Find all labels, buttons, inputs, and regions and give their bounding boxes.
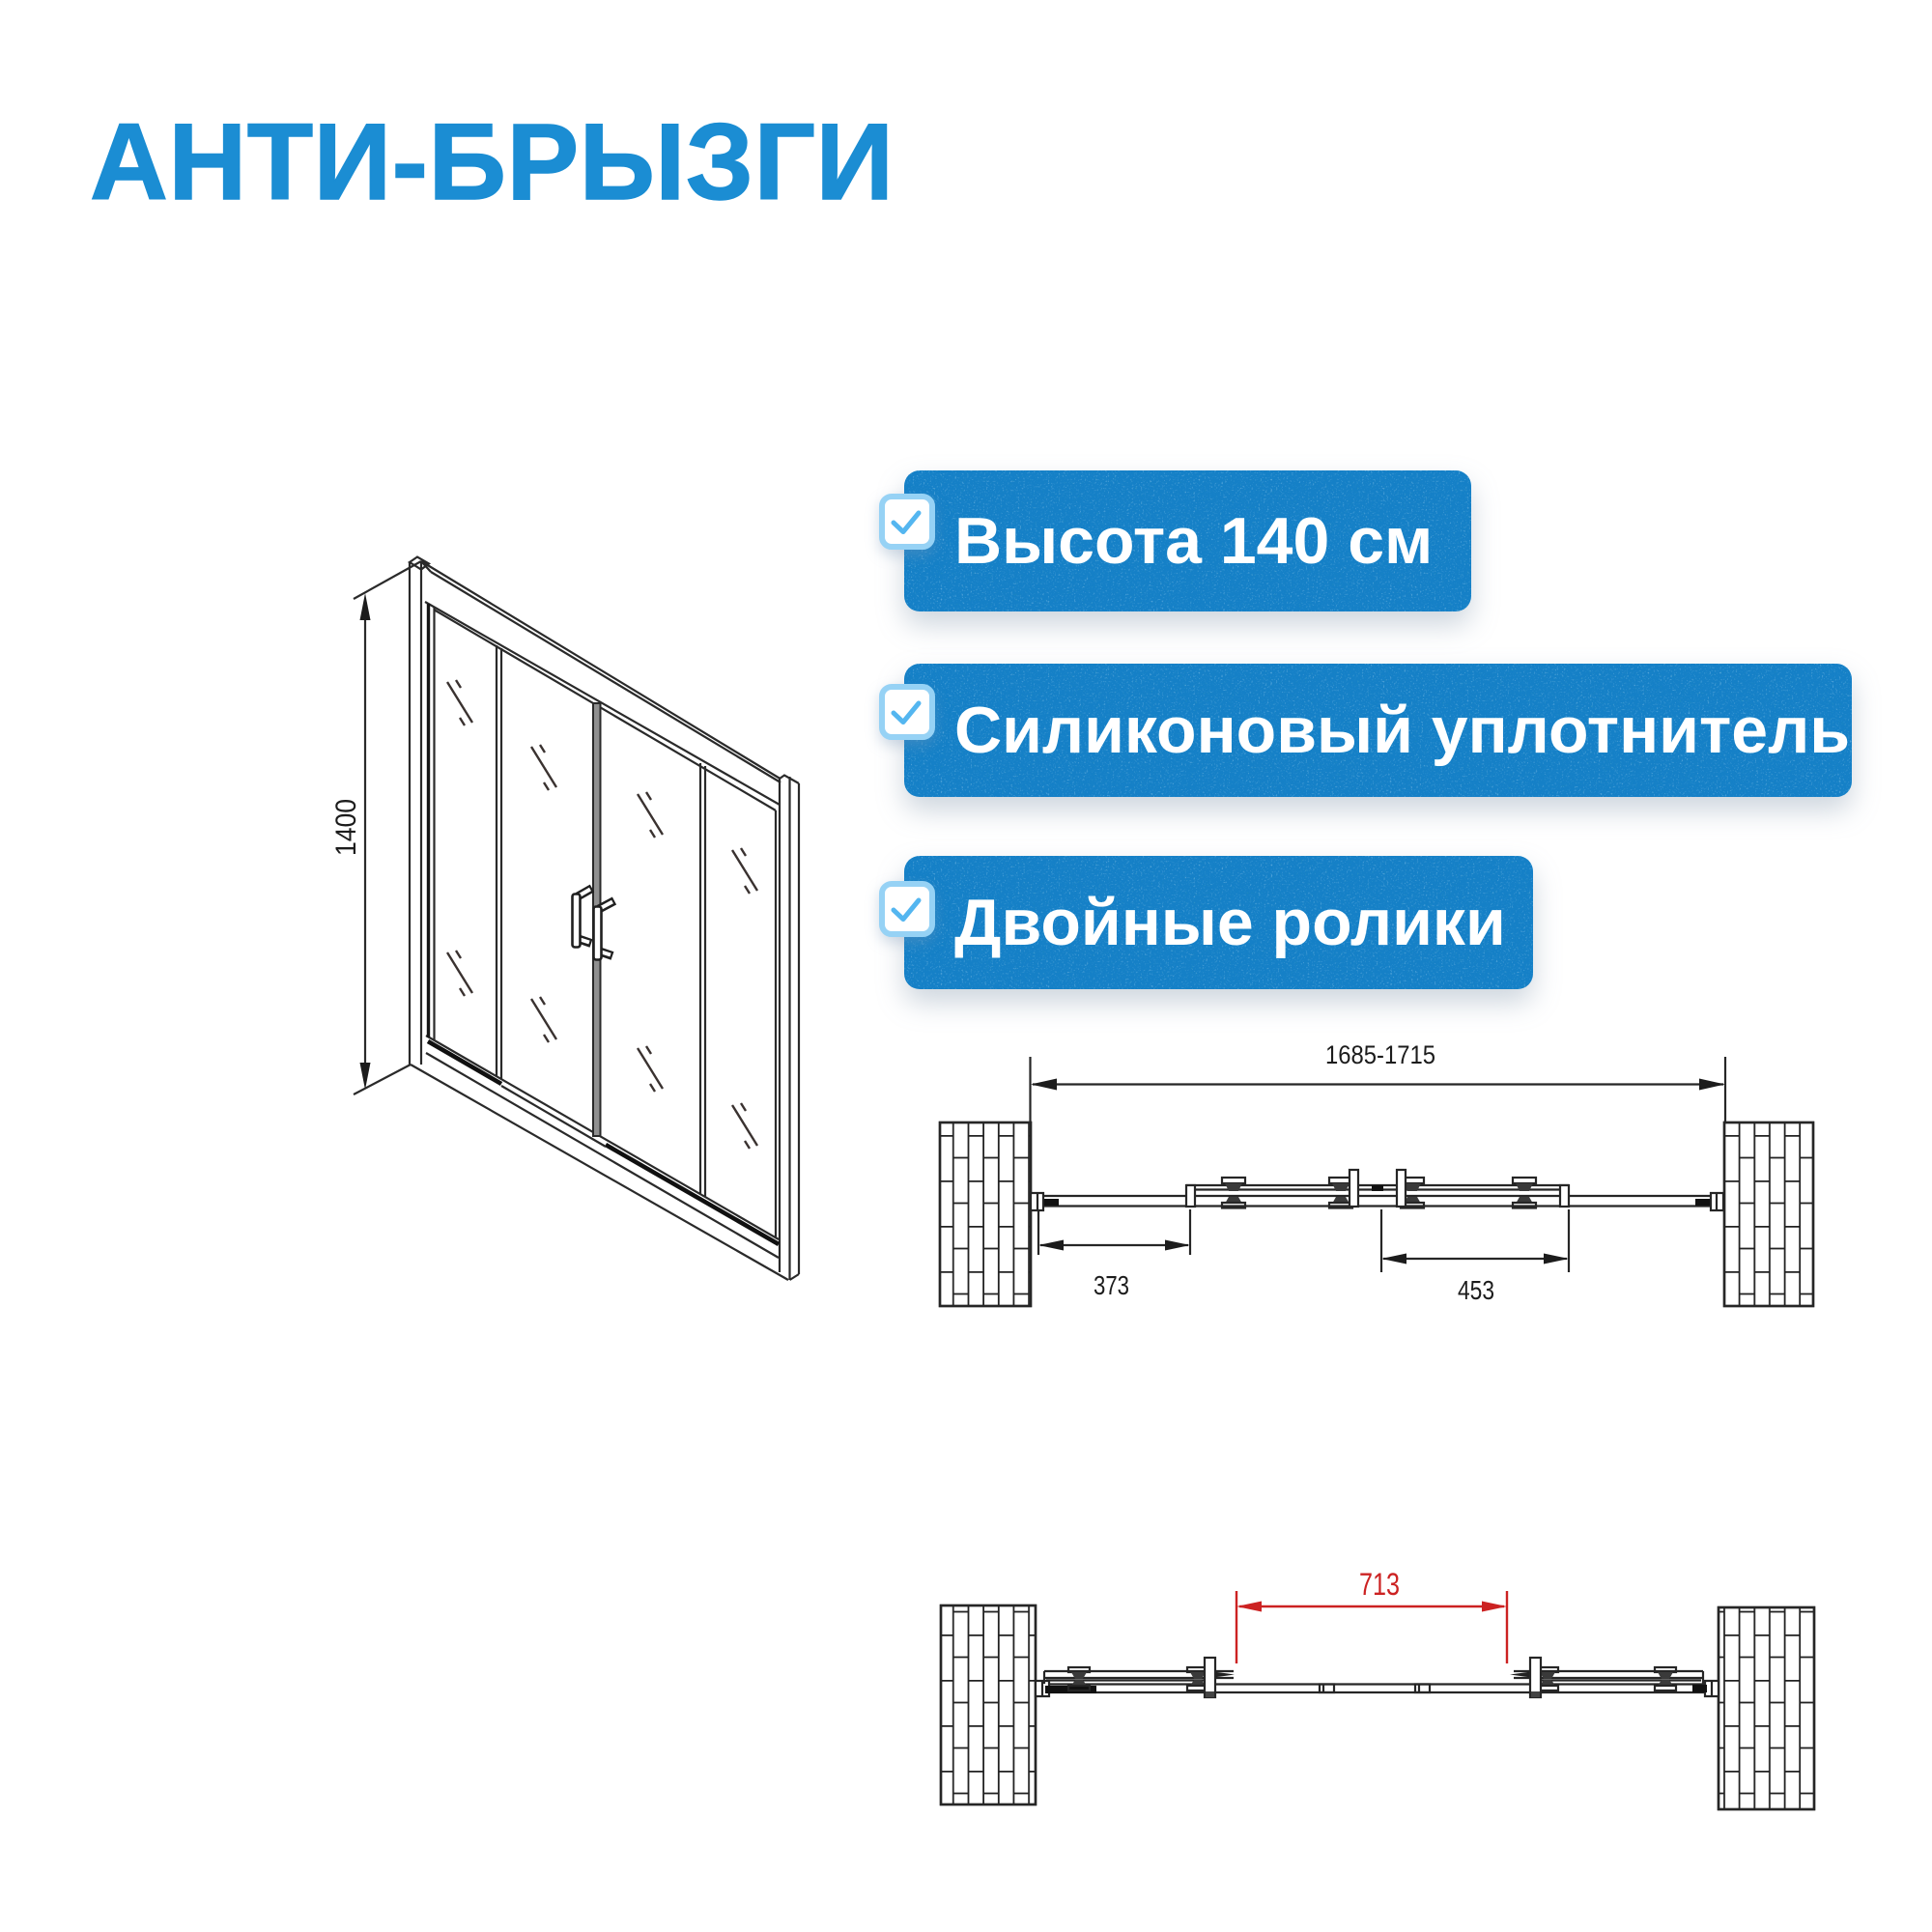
svg-text:453: 453 bbox=[1458, 1275, 1494, 1305]
svg-text:1400: 1400 bbox=[330, 799, 362, 856]
svg-text:373: 373 bbox=[1094, 1270, 1129, 1300]
svg-text:1685-1715: 1685-1715 bbox=[1325, 1040, 1435, 1069]
svg-text:713: 713 bbox=[1359, 1567, 1400, 1602]
